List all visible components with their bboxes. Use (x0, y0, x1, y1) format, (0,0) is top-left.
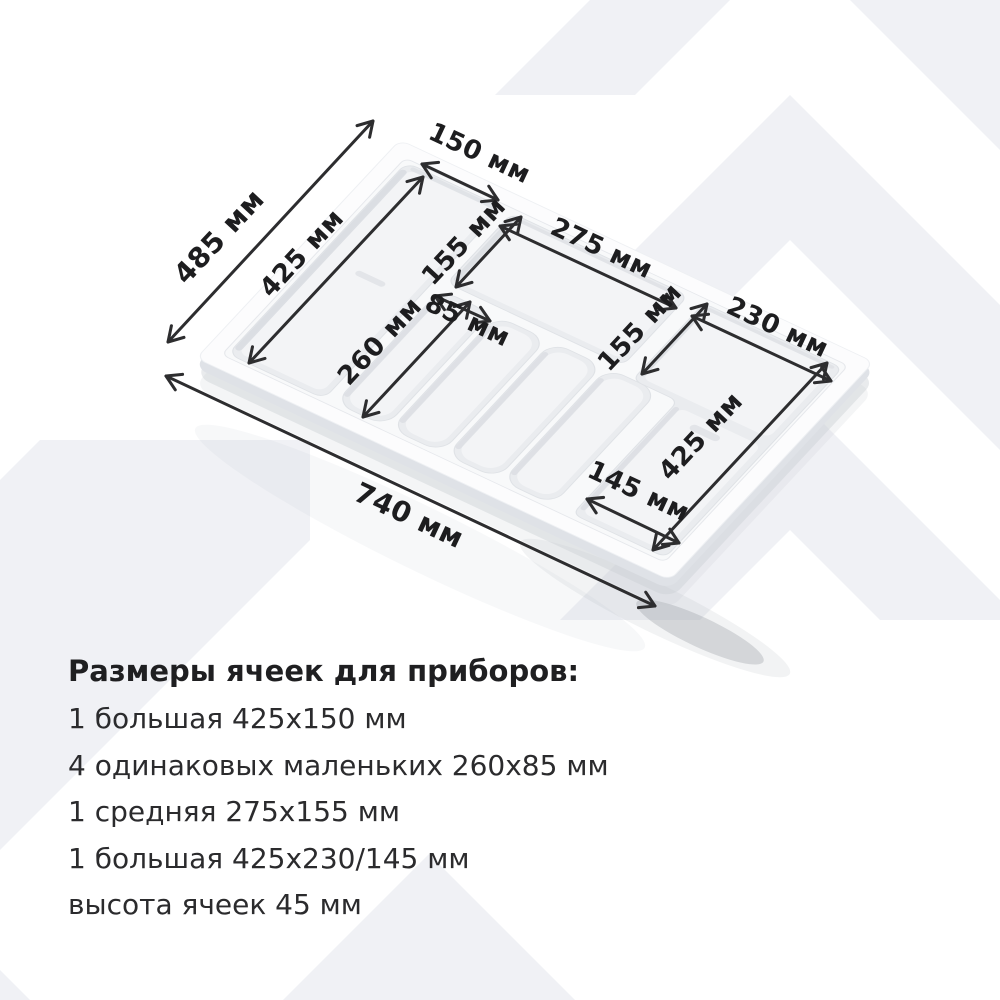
specs-item-height: высота ячеек 45 мм (68, 882, 688, 929)
dim-label-485: 485 мм (167, 182, 271, 290)
specs-item-small: 4 одинаковых маленьких 260х85 мм (68, 743, 688, 790)
specs-title: Размеры ячеек для приборов: (68, 646, 688, 696)
specs-panel: Размеры ячеек для приборов: 1 большая 42… (68, 646, 688, 929)
specs-item-large-1: 1 большая 425х150 мм (68, 696, 688, 743)
chevron-band-top-right-arm (850, 0, 1000, 150)
product-dimension-card: 485 мм 425 мм 150 мм 275 мм 155 мм 155 м… (0, 0, 1000, 1000)
chevron-stripe-corner (0, 970, 30, 1000)
chevron-band-top-left-arm (495, 0, 730, 95)
specs-item-medium: 1 средняя 275х155 мм (68, 789, 688, 836)
specs-item-large-2: 1 большая 425х230/145 мм (68, 836, 688, 883)
